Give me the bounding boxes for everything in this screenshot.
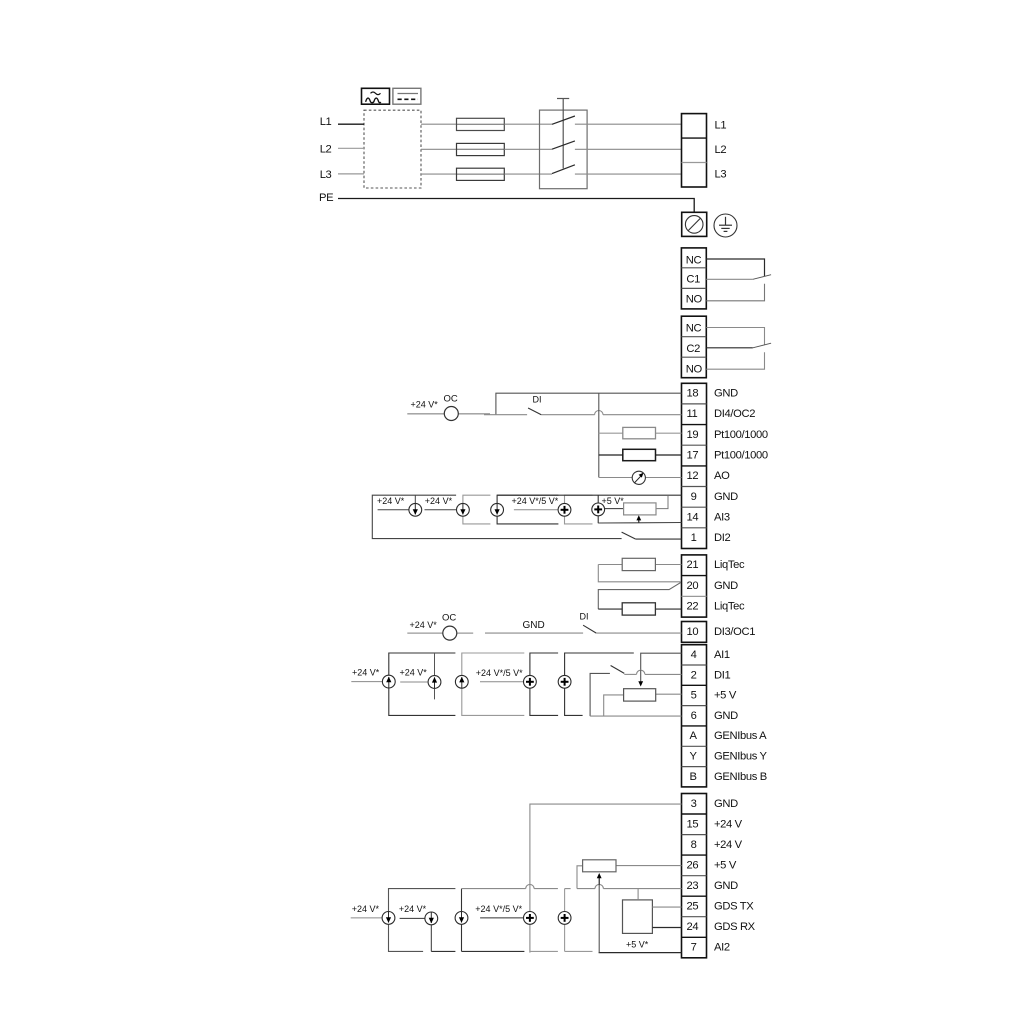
svg-text:GND: GND [714, 491, 738, 503]
svg-text:+24 V*/5 V*: +24 V*/5 V* [512, 496, 559, 506]
svg-text:17: 17 [687, 450, 699, 462]
svg-text:25: 25 [687, 901, 699, 913]
svg-text:GND: GND [714, 580, 738, 592]
svg-text:NC: NC [686, 254, 702, 266]
svg-text:Pt100/1000: Pt100/1000 [714, 450, 768, 462]
svg-text:23: 23 [687, 880, 699, 892]
svg-text:C1: C1 [686, 274, 700, 286]
svg-text:+24 V*/5 V*: +24 V*/5 V* [476, 668, 523, 678]
svg-text:20: 20 [687, 580, 699, 592]
svg-text:+24 V*: +24 V* [400, 667, 428, 677]
svg-text:1: 1 [691, 532, 697, 544]
svg-text:+5 V*: +5 V* [626, 940, 649, 950]
svg-text:+24 V: +24 V [714, 818, 743, 830]
svg-text:+24 V*: +24 V* [352, 667, 380, 677]
svg-text:AO: AO [714, 470, 730, 482]
svg-text:L2: L2 [715, 144, 727, 156]
svg-text:+5 V: +5 V [714, 690, 737, 702]
svg-text:DI3/OC1: DI3/OC1 [714, 626, 755, 638]
svg-text:DI4/OC2: DI4/OC2 [714, 408, 755, 420]
svg-text:PE: PE [319, 192, 333, 204]
svg-text:A: A [690, 730, 698, 742]
svg-text:22: 22 [687, 601, 699, 613]
svg-text:4: 4 [691, 649, 697, 661]
svg-text:GND: GND [714, 798, 738, 810]
svg-text:18: 18 [687, 388, 699, 400]
svg-text:Y: Y [690, 751, 698, 763]
svg-text:OC: OC [442, 613, 456, 624]
svg-text:LiqTec: LiqTec [714, 601, 745, 613]
svg-text:7: 7 [691, 942, 697, 954]
svg-text:GENIbus A: GENIbus A [714, 730, 767, 742]
svg-text:3: 3 [691, 798, 697, 810]
svg-text:9: 9 [691, 491, 697, 503]
svg-text:8: 8 [691, 839, 697, 851]
svg-text:L2: L2 [320, 143, 332, 155]
svg-text:DI: DI [580, 612, 589, 622]
svg-text:26: 26 [687, 859, 699, 871]
svg-text:C2: C2 [686, 343, 700, 355]
svg-text:OC: OC [444, 393, 458, 404]
svg-text:+24 V*: +24 V* [411, 399, 439, 409]
svg-text:NC: NC [686, 323, 702, 335]
svg-text:AI2: AI2 [714, 942, 730, 954]
svg-text:AI3: AI3 [714, 512, 730, 524]
svg-text:6: 6 [691, 710, 697, 722]
svg-text:DI: DI [533, 395, 542, 405]
svg-text:14: 14 [687, 512, 699, 524]
svg-text:+24 V*: +24 V* [425, 496, 453, 506]
svg-text:+5 V: +5 V [714, 859, 737, 871]
svg-text:L1: L1 [715, 119, 727, 131]
svg-text:2: 2 [691, 669, 697, 681]
svg-text:L1: L1 [320, 116, 332, 128]
svg-text:+5 V*: +5 V* [602, 496, 625, 506]
svg-text:L3: L3 [320, 169, 332, 181]
svg-text:15: 15 [687, 818, 699, 830]
svg-text:LiqTec: LiqTec [714, 559, 745, 571]
svg-text:+24 V: +24 V [714, 839, 743, 851]
svg-text:DI1: DI1 [714, 669, 730, 681]
svg-text:NO: NO [686, 293, 703, 305]
svg-text:10: 10 [687, 626, 699, 638]
svg-text:L3: L3 [715, 169, 727, 181]
svg-text:19: 19 [687, 429, 699, 441]
svg-text:Pt100/1000: Pt100/1000 [714, 429, 768, 441]
svg-text:GND: GND [523, 620, 545, 631]
svg-text:GND: GND [714, 880, 738, 892]
svg-text:+24 V*: +24 V* [377, 496, 405, 506]
svg-text:NO: NO [686, 363, 703, 375]
svg-text:11: 11 [687, 408, 698, 420]
svg-text:GDS RX: GDS RX [714, 921, 756, 933]
svg-text:GND: GND [714, 388, 738, 400]
svg-text:+24 V*: +24 V* [410, 620, 438, 630]
svg-text:GENIbus Y: GENIbus Y [714, 751, 767, 763]
svg-text:GENIbus B: GENIbus B [714, 771, 767, 783]
svg-text:AI1: AI1 [714, 649, 730, 661]
svg-text:GDS TX: GDS TX [714, 901, 754, 913]
svg-text:GND: GND [714, 710, 738, 722]
svg-text:+24 V*/5 V*: +24 V*/5 V* [475, 904, 522, 914]
svg-text:B: B [690, 771, 697, 783]
svg-text:5: 5 [691, 690, 697, 702]
svg-text:24: 24 [687, 921, 699, 933]
svg-text:12: 12 [687, 470, 699, 482]
svg-text:DI2: DI2 [714, 532, 730, 544]
svg-text:+24 V*: +24 V* [352, 904, 380, 914]
svg-text:+24 V*: +24 V* [399, 904, 427, 914]
svg-text:21: 21 [687, 559, 699, 571]
